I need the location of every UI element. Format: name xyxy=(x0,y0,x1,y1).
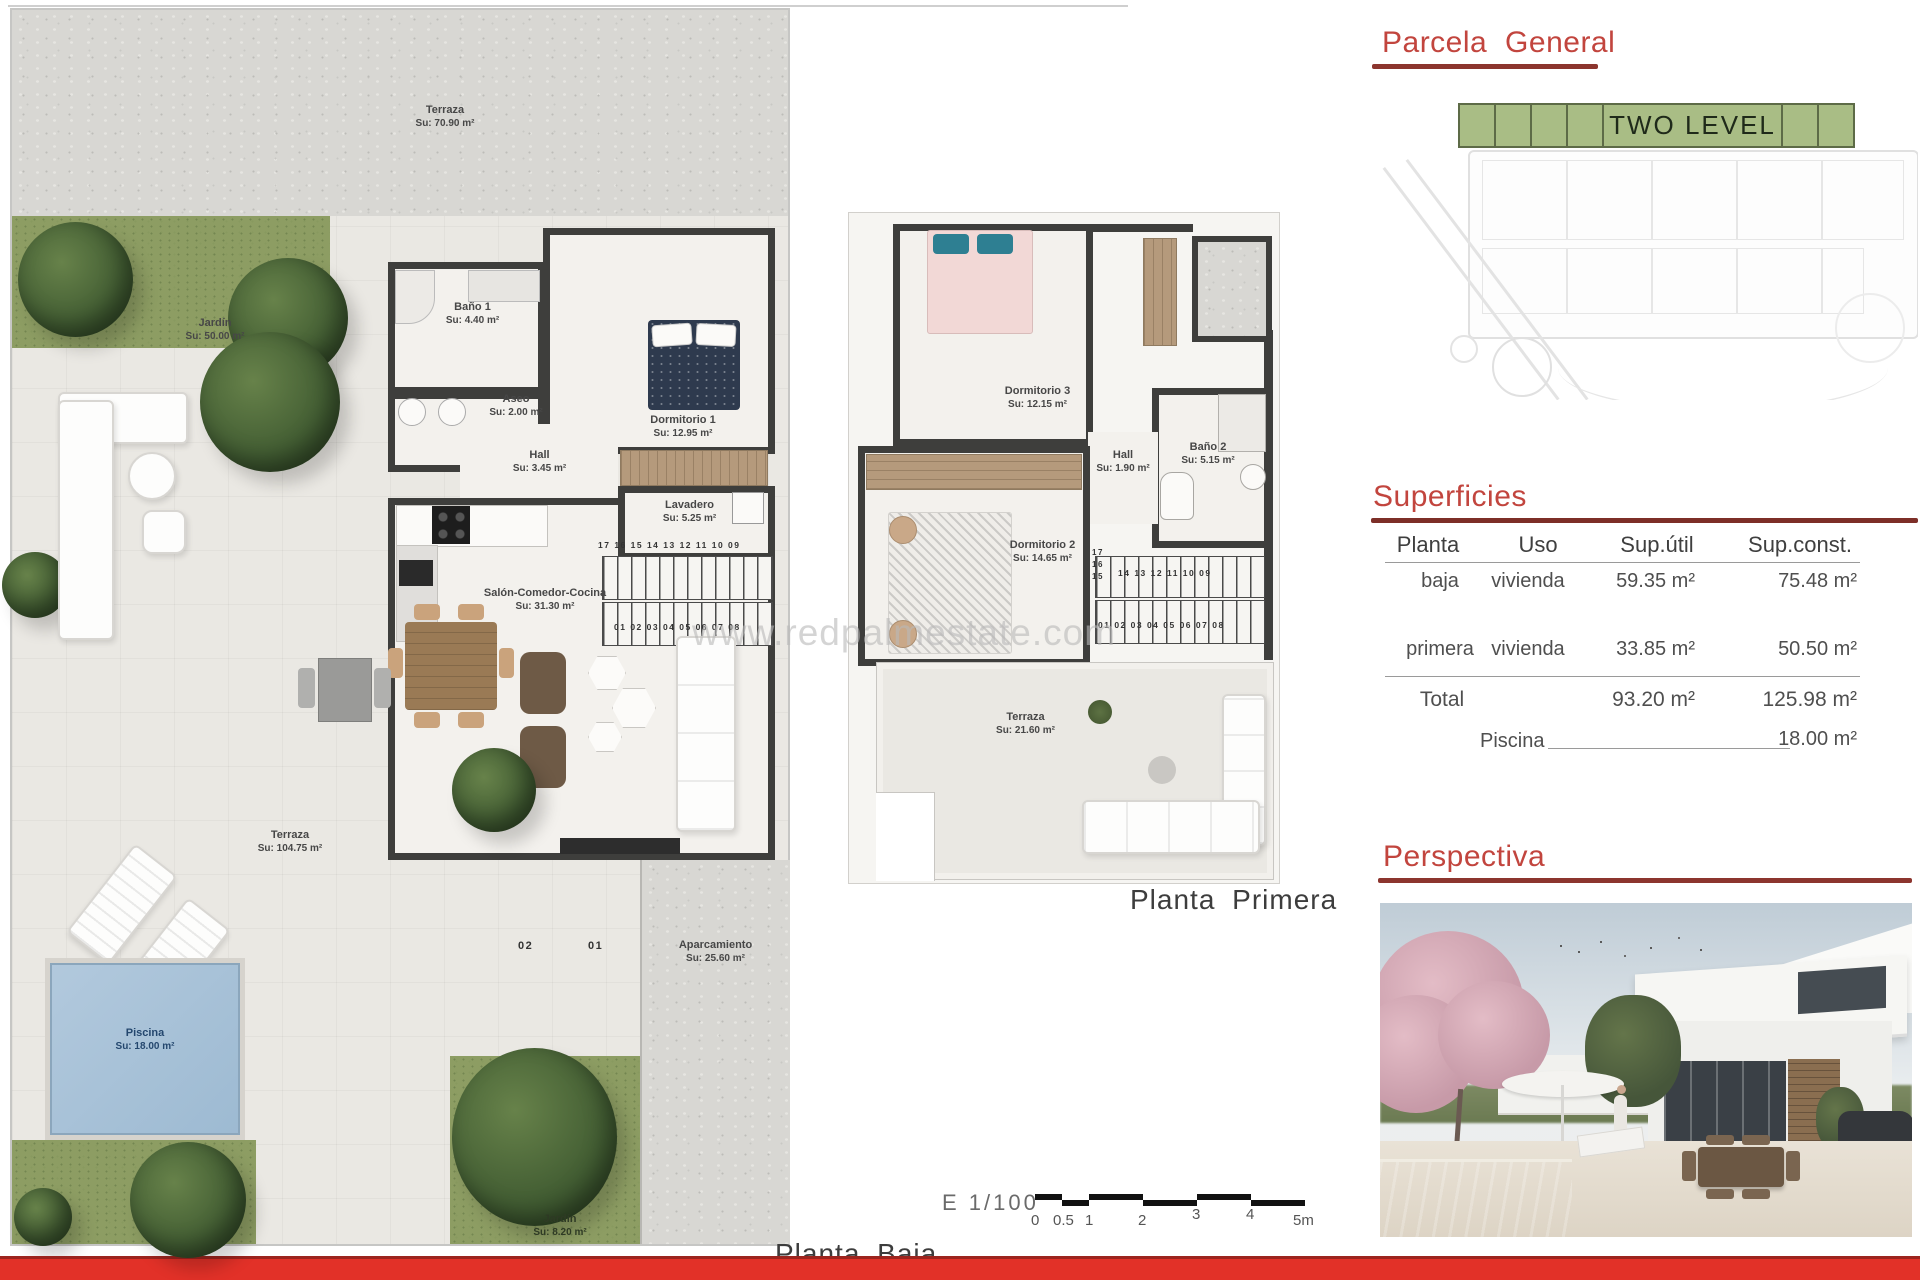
wall-segment xyxy=(1264,330,1273,660)
planta-primera-title: Planta Primera xyxy=(1130,884,1337,916)
bathroom-counter xyxy=(468,270,540,302)
col-header-sup-util: Sup.útil xyxy=(1620,532,1693,558)
superficies-heading-rule xyxy=(1371,518,1918,523)
row-baja-planta: baja xyxy=(1421,570,1459,593)
row-baja-uso: vivienda xyxy=(1491,570,1564,593)
perspectiva-heading-rule xyxy=(1378,878,1912,883)
room-label-jardin: Jardín Su: 50.00 m² xyxy=(145,316,285,343)
parcel-cell xyxy=(1496,105,1532,146)
parcel-plot-circle xyxy=(1835,293,1905,363)
piscina-dotted-line xyxy=(1548,748,1790,749)
upper-window xyxy=(1798,966,1886,1014)
parking-number-02: 02 xyxy=(518,940,533,952)
room-label-aparcamiento: Aparcamiento Su: 25.60 m² xyxy=(648,938,783,965)
parcel-roundabout-small xyxy=(1450,335,1478,363)
outdoor-chair xyxy=(1706,1135,1734,1145)
gallery-deck xyxy=(620,450,768,486)
table-header-rule xyxy=(1385,562,1860,563)
tree xyxy=(130,1142,246,1258)
outdoor-chair xyxy=(1742,1135,1770,1145)
room-label-piscina: Piscina Su: 18.00 m² xyxy=(85,1026,205,1053)
parcel-two-level-strip: TWO LEVEL xyxy=(1458,103,1855,148)
room-label-salon: Salón-Comedor-Cocina Su: 31.30 m² xyxy=(455,586,635,613)
piscina-label: Piscina xyxy=(1480,730,1544,753)
dining-table xyxy=(405,622,497,710)
bed-pillow xyxy=(695,323,736,347)
perspective-render xyxy=(1380,903,1912,1237)
stair-numbers-upper: 17 16 15 14 13 12 11 10 09 xyxy=(598,540,741,550)
bed-pillow xyxy=(651,323,692,348)
row-primera-planta: primera xyxy=(1406,638,1474,661)
perspectiva-heading: Perspectiva xyxy=(1383,840,1545,874)
outdoor-sofa xyxy=(58,400,114,640)
person-head xyxy=(1617,1085,1626,1094)
birds xyxy=(1560,945,1562,947)
render-pool xyxy=(1380,1159,1572,1237)
col-header-sup-const: Sup.const. xyxy=(1748,532,1852,558)
tv-sideboard xyxy=(560,838,680,854)
dining-chair xyxy=(499,648,514,678)
scale-segment xyxy=(1143,1200,1197,1206)
watermark: www.redpalmestate.com xyxy=(692,612,1116,654)
room-label-dormitorio3: Dormitorio 3 Su: 12.15 m² xyxy=(975,384,1100,411)
bed-pillow xyxy=(933,234,969,254)
scale-segment xyxy=(1035,1194,1062,1200)
deck-strip-dormitorio2 xyxy=(866,454,1082,490)
row-primera-util: 33.85 m² xyxy=(1616,638,1695,661)
row-baja-util: 59.35 m² xyxy=(1616,570,1695,593)
outdoor-chair xyxy=(1742,1189,1770,1199)
parcel-roundabout xyxy=(1492,337,1552,397)
col-header-planta: Planta xyxy=(1397,532,1459,558)
stair-numbers-lower-primera: 01 02 03 04 05 06 07 08 xyxy=(1098,620,1225,630)
outdoor-chair xyxy=(1706,1189,1734,1199)
scale-tick: 2 xyxy=(1138,1212,1146,1229)
col-header-uso: Uso xyxy=(1518,532,1557,558)
bed-pillow xyxy=(889,516,917,544)
upper-deck-strip xyxy=(1143,238,1177,346)
armchair xyxy=(520,652,566,714)
scale-segment xyxy=(1197,1194,1251,1200)
bed-pillow xyxy=(977,234,1013,254)
parcel-cell xyxy=(1460,105,1496,146)
upper-concrete-terrace xyxy=(1192,236,1272,342)
room-label-dormitorio1: Dormitorio 1 Su: 12.95 m² xyxy=(618,413,748,440)
row-baja-const: 75.48 m² xyxy=(1778,570,1857,593)
row-primera-const: 50.50 m² xyxy=(1778,638,1857,661)
scale-tick: 3 xyxy=(1192,1206,1200,1223)
parasol-pole xyxy=(1561,1085,1564,1143)
room-label-terraza-main: Terraza Su: 104.75 m² xyxy=(225,828,355,855)
stair-number-17: 17 xyxy=(1092,548,1104,557)
armchair xyxy=(142,510,186,554)
top-border-line xyxy=(8,5,1128,7)
room-label-jardin-bottom: Jardín Su: 8.20 m² xyxy=(500,1212,620,1239)
parcel-cell xyxy=(1783,105,1819,146)
parcela-heading-rule xyxy=(1372,64,1598,69)
tree xyxy=(452,748,536,832)
outdoor-chair xyxy=(1786,1151,1800,1181)
toilet xyxy=(1160,472,1194,520)
parcel-plots-row xyxy=(1482,160,1904,240)
scale-bar: 0 0.5 1 2 3 4 5m xyxy=(1035,1194,1305,1206)
scale-tick: 1 xyxy=(1085,1212,1093,1229)
oven xyxy=(399,560,433,586)
parcela-general-heading: Parcela General xyxy=(1382,26,1615,60)
bottom-red-band xyxy=(0,1256,1920,1280)
cooktop xyxy=(432,506,470,544)
dining-chair xyxy=(458,712,484,728)
outdoor-chair xyxy=(1682,1151,1696,1181)
hall-floor-primera xyxy=(1088,432,1158,524)
aparcamiento-surface xyxy=(640,860,790,1244)
parcel-plots-row xyxy=(1482,248,1864,314)
sink xyxy=(1240,464,1266,490)
parcel-site-diagram: TWO LEVEL xyxy=(1380,85,1918,400)
room-label-lavadero: Lavadero Su: 5.25 m² xyxy=(632,498,747,525)
room-label-hall-primera: Hall Su: 1.90 m² xyxy=(1086,448,1160,475)
stair-numbers-mid: 14 13 12 11 10 09 xyxy=(1118,568,1212,578)
superficies-heading: Superficies xyxy=(1373,480,1527,514)
large-tree xyxy=(452,1048,617,1226)
kitchen-counter xyxy=(396,505,548,547)
room-label-bano2: Baño 2 Su: 5.15 m² xyxy=(1158,440,1258,467)
parcel-cell xyxy=(1568,105,1604,146)
room-label-terraza-top: Terraza Su: 70.90 m² xyxy=(375,103,515,130)
scale-tick: 0.5 xyxy=(1053,1212,1074,1229)
scale-tick: 5m xyxy=(1293,1212,1314,1229)
dining-chair xyxy=(414,712,440,728)
parcel-cell xyxy=(1819,105,1853,146)
dining-chair xyxy=(414,604,440,620)
scale-label: E 1/100 xyxy=(942,1190,1039,1216)
total-util: 93.20 m² xyxy=(1612,688,1695,712)
outdoor-dining-table xyxy=(1698,1147,1784,1187)
row-primera-uso: vivienda xyxy=(1491,638,1564,661)
piscina-value: 18.00 m² xyxy=(1778,728,1857,751)
total-const: 125.98 m² xyxy=(1762,688,1857,712)
bistro-chair xyxy=(374,668,391,708)
glass-wall xyxy=(1664,1061,1786,1141)
room-label-terraza-primera: Terraza Su: 21.60 m² xyxy=(968,710,1083,737)
scale-segment xyxy=(1062,1200,1089,1206)
table-total-rule xyxy=(1385,676,1860,677)
outdoor-sofa xyxy=(1082,800,1260,854)
stair-number-15: 15 xyxy=(1092,572,1104,581)
tree xyxy=(18,222,133,337)
room-label-hall: Hall Su: 3.45 m² xyxy=(487,448,592,475)
scale-tick: 0 xyxy=(1031,1212,1039,1229)
scale-segment xyxy=(1089,1194,1143,1200)
bistro-chair xyxy=(298,668,315,708)
room-label-dormitorio2: Dormitorio 2 Su: 14.65 m² xyxy=(985,538,1100,565)
plant-pot xyxy=(1088,700,1112,724)
parcel-cell xyxy=(1532,105,1568,146)
sink xyxy=(398,398,426,426)
bistro-table xyxy=(318,658,372,722)
stair-number-16: 16 xyxy=(1092,560,1104,569)
two-level-label: TWO LEVEL xyxy=(1604,105,1783,146)
sofa xyxy=(676,636,736,832)
terrace-notch xyxy=(876,792,935,881)
scale-tick: 4 xyxy=(1246,1206,1254,1223)
floorplan-sheet: Terraza Su: 70.90 m² Jardín Su: 50.00 m²… xyxy=(0,0,1920,1280)
wall-segment xyxy=(1093,224,1193,232)
room-label-bano1: Baño 1 Su: 4.40 m² xyxy=(415,300,530,327)
palm-tree xyxy=(200,332,340,472)
scale-segment xyxy=(1251,1200,1305,1206)
coffee-table xyxy=(128,452,176,500)
room-label-aseo: Aseo Su: 2.00 m² xyxy=(462,392,570,419)
total-label: Total xyxy=(1420,688,1464,712)
bush xyxy=(14,1188,72,1246)
parking-number-01: 01 xyxy=(588,940,603,952)
side-table xyxy=(1148,756,1176,784)
